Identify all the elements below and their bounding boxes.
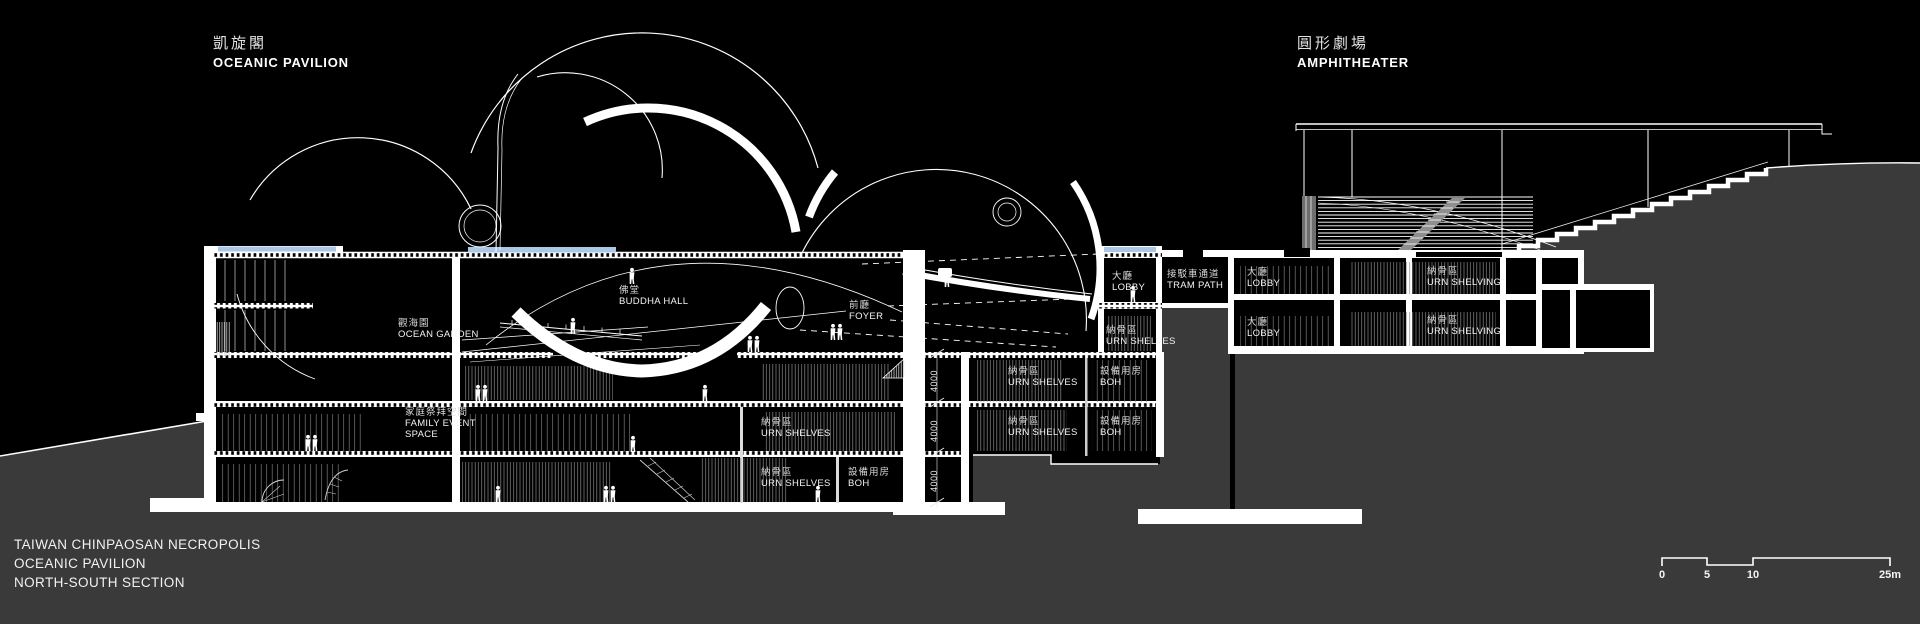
pavilion-title-en: OCEANIC PAVILION [213, 54, 349, 71]
section-drawing [0, 0, 1920, 624]
label-boh-r1: 設備用房 BOH [1100, 366, 1142, 388]
title-line-3: NORTH-SOUTH SECTION [14, 573, 260, 592]
scale-tick-10: 10 [1747, 569, 1759, 581]
label-urn-shelves-r2: 納骨區 URN SHELVES [1008, 416, 1078, 438]
label-urn-shelves-r1: 納骨區 URN SHELVES [1008, 366, 1078, 388]
scale-tick-5: 5 [1704, 569, 1710, 581]
label-east-lobby-upper: 大廳 LOBBY [1247, 267, 1280, 289]
section-sheet: 凱旋閣 OCEANIC PAVILION 圓形劇場 AMPHITHEATER 觀… [0, 0, 1920, 624]
title-line-1: TAIWAN CHINPAOSAN NECROPOLIS [14, 535, 260, 554]
title-line-2: OCEANIC PAVILION [14, 554, 260, 573]
label-foyer: 前廳 FOYER [849, 300, 883, 322]
label-boh-r2: 設備用房 BOH [1100, 416, 1142, 438]
amphitheater-title-en: AMPHITHEATER [1297, 54, 1409, 71]
label-boh-l3: 設備用房 BOH [848, 467, 890, 489]
pavilion-title: 凱旋閣 OCEANIC PAVILION [213, 34, 349, 71]
dim-4000-level2: 4000 [929, 420, 939, 442]
label-east-lobby-lower: 大廳 LOBBY [1247, 317, 1280, 339]
label-east-urn-shelving-upper: 納骨區 URN SHELVING [1427, 266, 1501, 288]
label-family-event-space: 家庭祭拜空間 FAMILY EVENT SPACE [405, 407, 476, 440]
label-main-urn-shelves: 納骨區 URN SHELVES [1106, 325, 1176, 347]
label-ocean-garden: 觀海園 OCEAN GARDEN [398, 318, 479, 340]
amphitheater-title-zh: 圓形劇場 [1297, 34, 1409, 54]
scale-tick-25m: 25m [1879, 569, 1901, 581]
label-urn-shelves-l3: 納骨區 URN SHELVES [761, 467, 831, 489]
label-tram-path: 接駁車通道 TRAM PATH [1167, 269, 1223, 291]
scale-tick-0: 0 [1659, 569, 1665, 581]
amphitheater-title: 圓形劇場 AMPHITHEATER [1297, 34, 1409, 71]
label-east-urn-shelving-lower: 納骨區 URN SHELVING [1427, 315, 1501, 337]
label-urn-shelves-l2: 納骨區 URN SHELVES [761, 417, 831, 439]
pavilion-title-zh: 凱旋閣 [213, 34, 349, 54]
dim-4000-level3: 4000 [929, 470, 939, 492]
label-main-lobby: 大廳 LOBBY [1112, 271, 1145, 293]
title-block: TAIWAN CHINPAOSAN NECROPOLIS OCEANIC PAV… [14, 535, 260, 592]
label-buddha-hall: 佛堂 BUDDHA HALL [619, 285, 688, 307]
dim-4000-level1: 4000 [929, 370, 939, 392]
